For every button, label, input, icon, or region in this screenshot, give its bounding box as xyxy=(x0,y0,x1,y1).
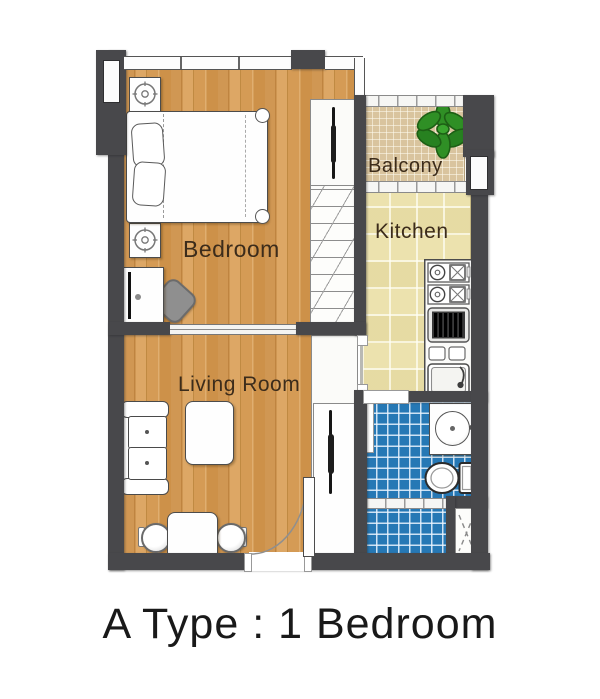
dining-chair-right xyxy=(216,523,246,553)
bed xyxy=(126,111,268,223)
sofa-armrest xyxy=(121,478,169,495)
bed-post xyxy=(255,209,270,224)
sofa-cushion xyxy=(128,447,167,480)
shower-screen-horizontal xyxy=(365,498,449,509)
desk-knob xyxy=(135,294,141,300)
wall-middle-vertical xyxy=(354,95,366,335)
toilet-icon xyxy=(423,459,477,497)
storage-door-handle-grip xyxy=(328,434,334,474)
window-top-left xyxy=(103,60,120,103)
balcony-bottom-railing xyxy=(358,181,470,193)
nightstand-top xyxy=(129,77,161,112)
wall-bathroom-left xyxy=(354,390,367,557)
bedroom-closet-cabinet xyxy=(310,99,358,187)
desk xyxy=(123,267,164,324)
grill-icon xyxy=(428,308,469,342)
bed-post xyxy=(255,108,270,123)
plan-caption: A Type : 1 Bedroom xyxy=(0,600,600,649)
bedroom-sliding-door xyxy=(170,324,298,335)
wall-pier-top xyxy=(291,50,325,69)
wall-divider-left xyxy=(108,322,170,335)
coffee-table xyxy=(185,401,234,465)
bedroom-label: Bedroom xyxy=(183,236,280,263)
desk-edge xyxy=(128,272,131,319)
storage-door-panel xyxy=(313,403,356,555)
stove-burner-icon xyxy=(428,285,470,304)
entrance-door-leaf xyxy=(303,477,315,557)
bed-fold-line xyxy=(245,115,246,217)
passage-jamb-top xyxy=(357,335,368,346)
window-right xyxy=(470,156,488,190)
wall-right xyxy=(471,187,488,570)
lamp-icon xyxy=(130,224,160,257)
kitchen-counter xyxy=(424,259,474,399)
storage-column xyxy=(311,335,358,557)
living-room-label: Living Room xyxy=(178,373,300,397)
kitchen-label: Kitchen xyxy=(375,220,449,244)
basin-icon xyxy=(435,411,470,446)
shower-wall-left xyxy=(446,496,455,557)
wardrobe-shelves xyxy=(310,185,358,326)
pillow xyxy=(132,161,167,207)
floorplan-canvas: Bedroom Living Room Kitchen xyxy=(0,0,600,699)
bathroom-door xyxy=(363,390,409,404)
nightstand-bottom xyxy=(129,223,161,258)
plant-icon xyxy=(416,101,470,159)
sofa-cushion xyxy=(128,416,167,449)
bathroom-vanity xyxy=(429,403,477,455)
lamp-icon xyxy=(130,78,160,111)
closet-door-handle-grip xyxy=(331,125,337,163)
bedroom-window-side xyxy=(354,58,365,98)
wall-divider-right xyxy=(296,322,366,335)
stove-burner-icon xyxy=(428,263,470,282)
balcony-top-railing xyxy=(358,95,467,107)
pillar-top-right xyxy=(463,95,494,157)
bedroom-window-top xyxy=(124,56,292,70)
